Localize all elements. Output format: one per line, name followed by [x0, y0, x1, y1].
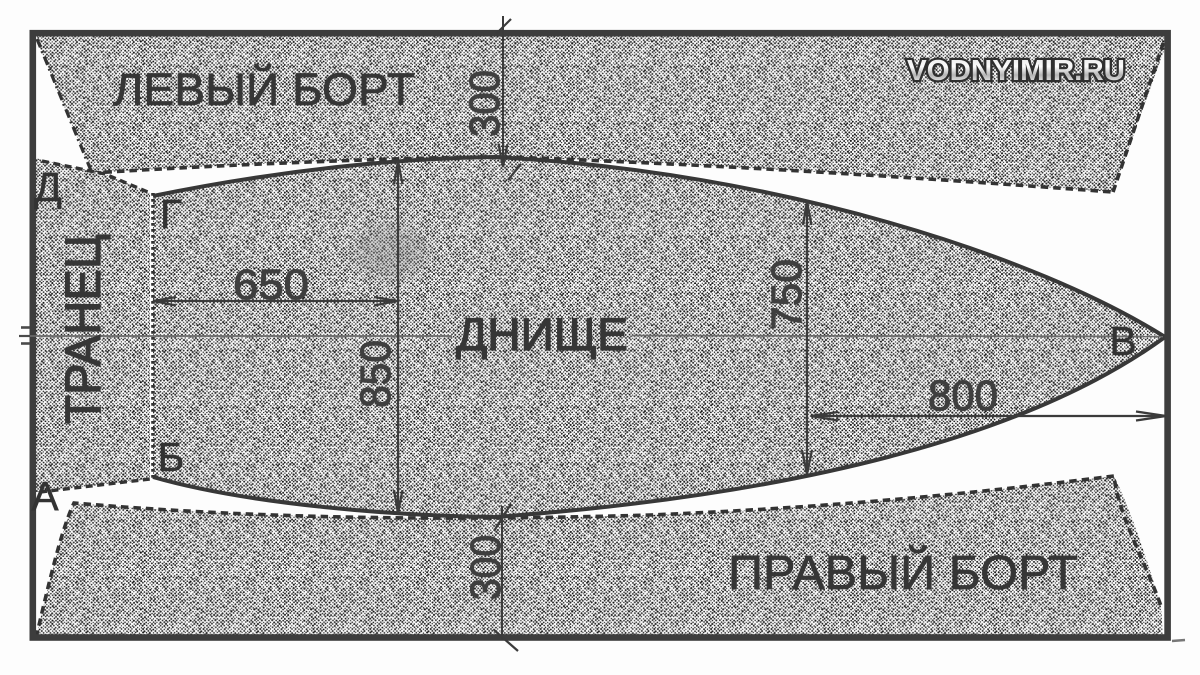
svg-text:Г: Г	[160, 191, 182, 237]
svg-text:300: 300	[461, 70, 509, 137]
svg-text:ПРАВЫЙ БОРТ: ПРАВЫЙ БОРТ	[728, 545, 1078, 600]
svg-text:650: 650	[233, 261, 309, 309]
svg-text:800: 800	[928, 372, 998, 420]
svg-text:ДНИЩЕ: ДНИЩЕ	[456, 309, 628, 360]
svg-text:ЛЕВЫЙ БОРТ: ЛЕВЫЙ БОРТ	[113, 64, 415, 115]
svg-text:VODNYIMIR.RU: VODNYIMIR.RU	[907, 55, 1125, 87]
svg-text:Д: Д	[34, 164, 62, 210]
svg-text:300: 300	[462, 535, 510, 600]
svg-text:Б: Б	[158, 434, 185, 480]
svg-text:750: 750	[763, 259, 811, 330]
svg-text:В: В	[1109, 318, 1136, 364]
svg-text:А: А	[31, 473, 59, 519]
svg-text:850: 850	[352, 340, 400, 408]
svg-text:ТРАНЕЦ: ТРАНЕЦ	[55, 234, 111, 424]
